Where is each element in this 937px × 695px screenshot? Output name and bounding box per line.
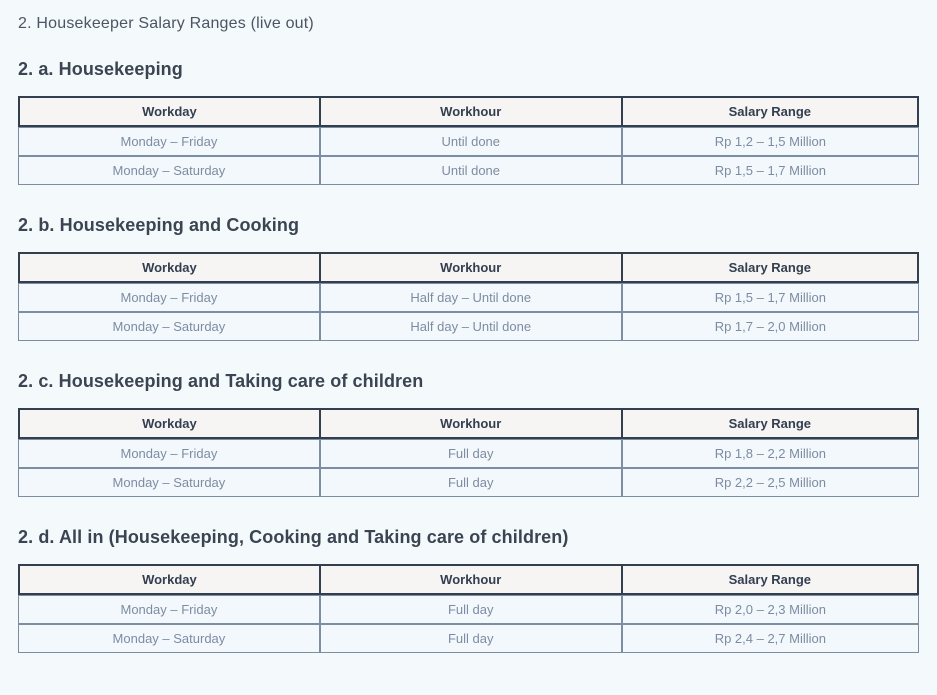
table-row: Monday – SaturdayUntil doneRp 1,5 – 1,7 … bbox=[18, 156, 919, 185]
table-row: Monday – SaturdayHalf day – Until doneRp… bbox=[18, 312, 919, 341]
table-cell: Rp 2,4 – 2,7 Million bbox=[622, 624, 919, 653]
table-cell: Monday – Saturday bbox=[18, 624, 320, 653]
table-header-row: WorkdayWorkhourSalary Range bbox=[18, 408, 919, 439]
column-header: Salary Range bbox=[622, 564, 919, 595]
table-cell: Rp 1,2 – 1,5 Million bbox=[622, 127, 919, 156]
table-cell: Half day – Until done bbox=[320, 312, 622, 341]
column-header: Workhour bbox=[320, 252, 622, 283]
salary-table: WorkdayWorkhourSalary RangeMonday – Frid… bbox=[18, 408, 919, 497]
salary-table: WorkdayWorkhourSalary RangeMonday – Frid… bbox=[18, 252, 919, 341]
table-header-row: WorkdayWorkhourSalary Range bbox=[18, 96, 919, 127]
column-header: Workday bbox=[18, 408, 320, 439]
table-cell: Rp 1,5 – 1,7 Million bbox=[622, 156, 919, 185]
table-header-row: WorkdayWorkhourSalary Range bbox=[18, 252, 919, 283]
table-cell: Monday – Saturday bbox=[18, 312, 320, 341]
salary-table: WorkdayWorkhourSalary RangeMonday – Frid… bbox=[18, 96, 919, 185]
column-header: Workday bbox=[18, 564, 320, 595]
table-cell: Full day bbox=[320, 624, 622, 653]
column-header: Salary Range bbox=[622, 408, 919, 439]
table-cell: Half day – Until done bbox=[320, 283, 622, 312]
table-row: Monday – FridayHalf day – Until doneRp 1… bbox=[18, 283, 919, 312]
table-cell: Monday – Saturday bbox=[18, 468, 320, 497]
salary-section: 2. a. HousekeepingWorkdayWorkhourSalary … bbox=[18, 59, 919, 185]
table-cell: Full day bbox=[320, 439, 622, 468]
column-header: Salary Range bbox=[622, 96, 919, 127]
column-header: Workday bbox=[18, 96, 320, 127]
table-row: Monday – FridayFull dayRp 1,8 – 2,2 Mill… bbox=[18, 439, 919, 468]
section-heading: 2. a. Housekeeping bbox=[18, 59, 919, 80]
section-heading: 2. b. Housekeeping and Cooking bbox=[18, 215, 919, 236]
table-header-row: WorkdayWorkhourSalary Range bbox=[18, 564, 919, 595]
salary-section: 2. c. Housekeeping and Taking care of ch… bbox=[18, 371, 919, 497]
table-cell: Until done bbox=[320, 156, 622, 185]
table-cell: Monday – Friday bbox=[18, 283, 320, 312]
table-cell: Rp 2,2 – 2,5 Million bbox=[622, 468, 919, 497]
table-row: Monday – SaturdayFull dayRp 2,2 – 2,5 Mi… bbox=[18, 468, 919, 497]
table-cell: Until done bbox=[320, 127, 622, 156]
salary-section: 2. b. Housekeeping and CookingWorkdayWor… bbox=[18, 215, 919, 341]
table-cell: Rp 1,7 – 2,0 Million bbox=[622, 312, 919, 341]
section-heading: 2. d. All in (Housekeeping, Cooking and … bbox=[18, 527, 919, 548]
section-heading: 2. c. Housekeeping and Taking care of ch… bbox=[18, 371, 919, 392]
column-header: Workhour bbox=[320, 408, 622, 439]
salary-table: WorkdayWorkhourSalary RangeMonday – Frid… bbox=[18, 564, 919, 653]
page-title: 2. Housekeeper Salary Ranges (live out) bbox=[18, 14, 919, 33]
salary-section: 2. d. All in (Housekeeping, Cooking and … bbox=[18, 527, 919, 653]
table-cell: Monday – Friday bbox=[18, 127, 320, 156]
table-cell: Rp 1,5 – 1,7 Million bbox=[622, 283, 919, 312]
table-cell: Monday – Friday bbox=[18, 439, 320, 468]
column-header: Salary Range bbox=[622, 252, 919, 283]
table-cell: Rp 2,0 – 2,3 Million bbox=[622, 595, 919, 624]
article-content: 2. Housekeeper Salary Ranges (live out) … bbox=[0, 0, 937, 695]
table-cell: Monday – Saturday bbox=[18, 156, 320, 185]
table-row: Monday – FridayUntil doneRp 1,2 – 1,5 Mi… bbox=[18, 127, 919, 156]
sections: 2. a. HousekeepingWorkdayWorkhourSalary … bbox=[18, 59, 919, 653]
column-header: Workday bbox=[18, 252, 320, 283]
table-cell: Full day bbox=[320, 595, 622, 624]
table-row: Monday – FridayFull dayRp 2,0 – 2,3 Mill… bbox=[18, 595, 919, 624]
table-cell: Full day bbox=[320, 468, 622, 497]
column-header: Workhour bbox=[320, 96, 622, 127]
table-row: Monday – SaturdayFull dayRp 2,4 – 2,7 Mi… bbox=[18, 624, 919, 653]
table-cell: Rp 1,8 – 2,2 Million bbox=[622, 439, 919, 468]
table-cell: Monday – Friday bbox=[18, 595, 320, 624]
column-header: Workhour bbox=[320, 564, 622, 595]
